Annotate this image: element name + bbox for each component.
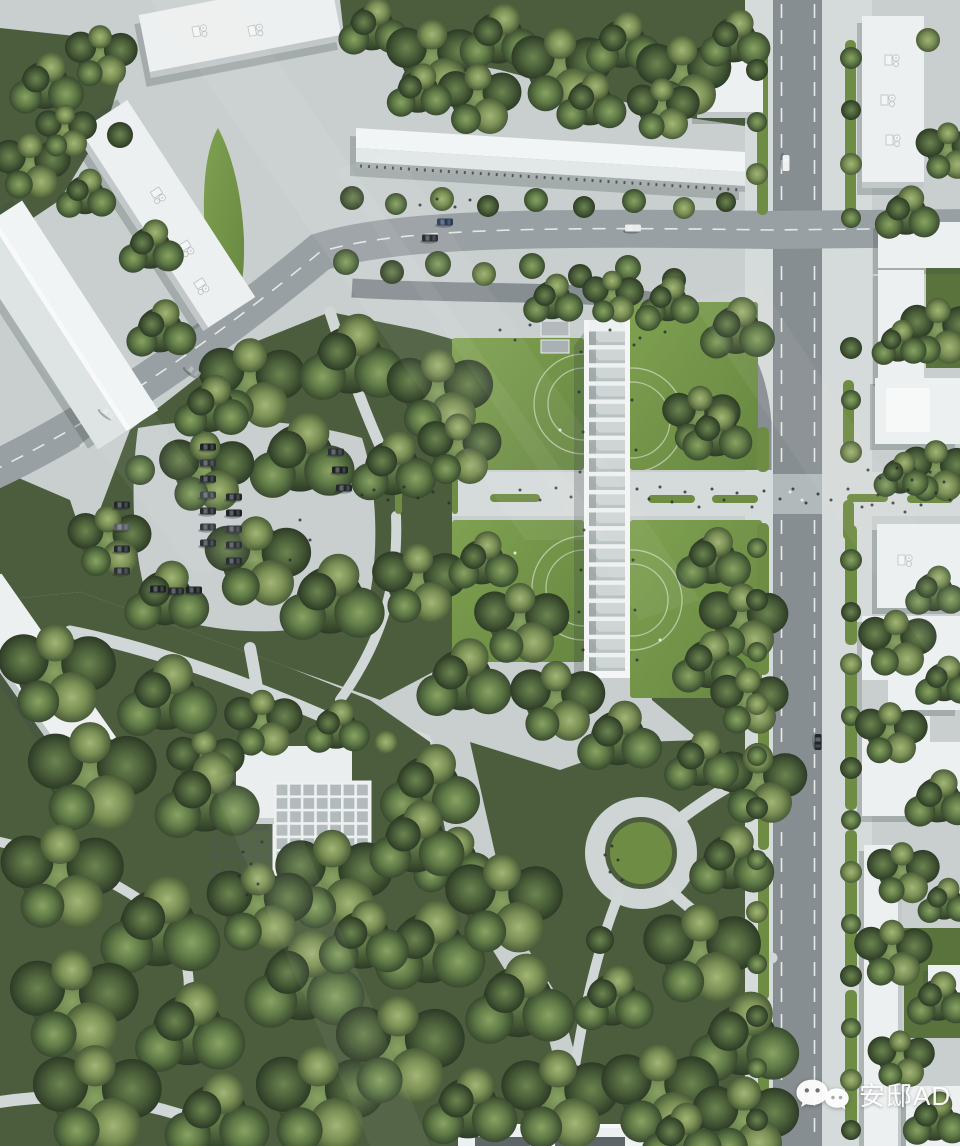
car [780, 153, 789, 171]
render-canvas [0, 0, 960, 1146]
tree-icon [840, 153, 862, 175]
tree-icon [747, 112, 767, 132]
tree-icon [746, 1005, 768, 1027]
parked-car [112, 568, 130, 577]
tree-icon [841, 1018, 861, 1038]
kiosk [541, 321, 569, 336]
tree-icon [746, 901, 768, 923]
tree-icon [747, 538, 767, 558]
tree-icon [841, 914, 861, 934]
roof-lightwell [886, 388, 930, 432]
tree-icon [747, 642, 767, 662]
building-notch [930, 716, 960, 742]
tree-icon [107, 122, 133, 148]
parked-car [166, 588, 184, 597]
tree-icon [841, 208, 861, 228]
tree-icon [622, 189, 646, 213]
hvac-unit-icon [881, 95, 895, 107]
aerial-masterplan-render: 安邸AD [0, 0, 960, 1146]
tree-icon [747, 954, 767, 974]
tree-icon [716, 192, 736, 212]
tree-icon [841, 810, 861, 830]
tree-icon [747, 850, 767, 870]
watermark: 安邸AD [794, 1076, 951, 1113]
tree-icon [841, 1120, 861, 1140]
tree-icon [841, 390, 861, 410]
tree-icon [673, 197, 695, 219]
parked-car [330, 467, 348, 476]
tree-icon [746, 693, 768, 715]
tree-icon [524, 188, 548, 212]
tree-icon [573, 196, 595, 218]
tree-icon [586, 926, 614, 954]
watermark-text: 安邸AD [859, 1076, 951, 1113]
tree-icon [840, 757, 862, 779]
circle-lawn [610, 822, 672, 884]
tree-icon [840, 337, 862, 359]
tree-icon [840, 861, 862, 883]
wechat-icon [794, 1077, 850, 1112]
parked-car [148, 586, 166, 595]
hvac-unit-icon [885, 55, 899, 67]
parked-car [198, 460, 216, 469]
parked-car [112, 502, 130, 511]
tree-icon [841, 100, 861, 120]
tree-icon [746, 589, 768, 611]
tree-icon [519, 253, 545, 279]
tree-icon [747, 746, 767, 766]
tree-icon [840, 653, 862, 675]
car [623, 225, 641, 234]
kiosk [541, 340, 569, 353]
tree-icon [840, 47, 862, 69]
parked-car [112, 546, 130, 555]
tree-icon [477, 195, 499, 217]
tree-icon [747, 1058, 767, 1078]
tree-icon [746, 1109, 768, 1131]
tree-icon [840, 965, 862, 987]
hvac-unit-icon [886, 135, 900, 147]
tree-icon [916, 28, 940, 52]
parked-car [112, 524, 130, 533]
tree-icon [635, 305, 661, 331]
parked-car [198, 444, 216, 453]
tree-icon [746, 163, 768, 185]
tree-icon [746, 59, 768, 81]
parked-car [334, 485, 352, 494]
tree-icon [840, 549, 862, 571]
building-east-top [857, 16, 924, 195]
parked-car [184, 587, 202, 596]
tree-icon [841, 602, 861, 622]
tree-icon [746, 797, 768, 819]
parked-car [224, 494, 242, 503]
car [812, 732, 821, 750]
tree-icon [374, 730, 398, 754]
parked-car [326, 449, 344, 458]
